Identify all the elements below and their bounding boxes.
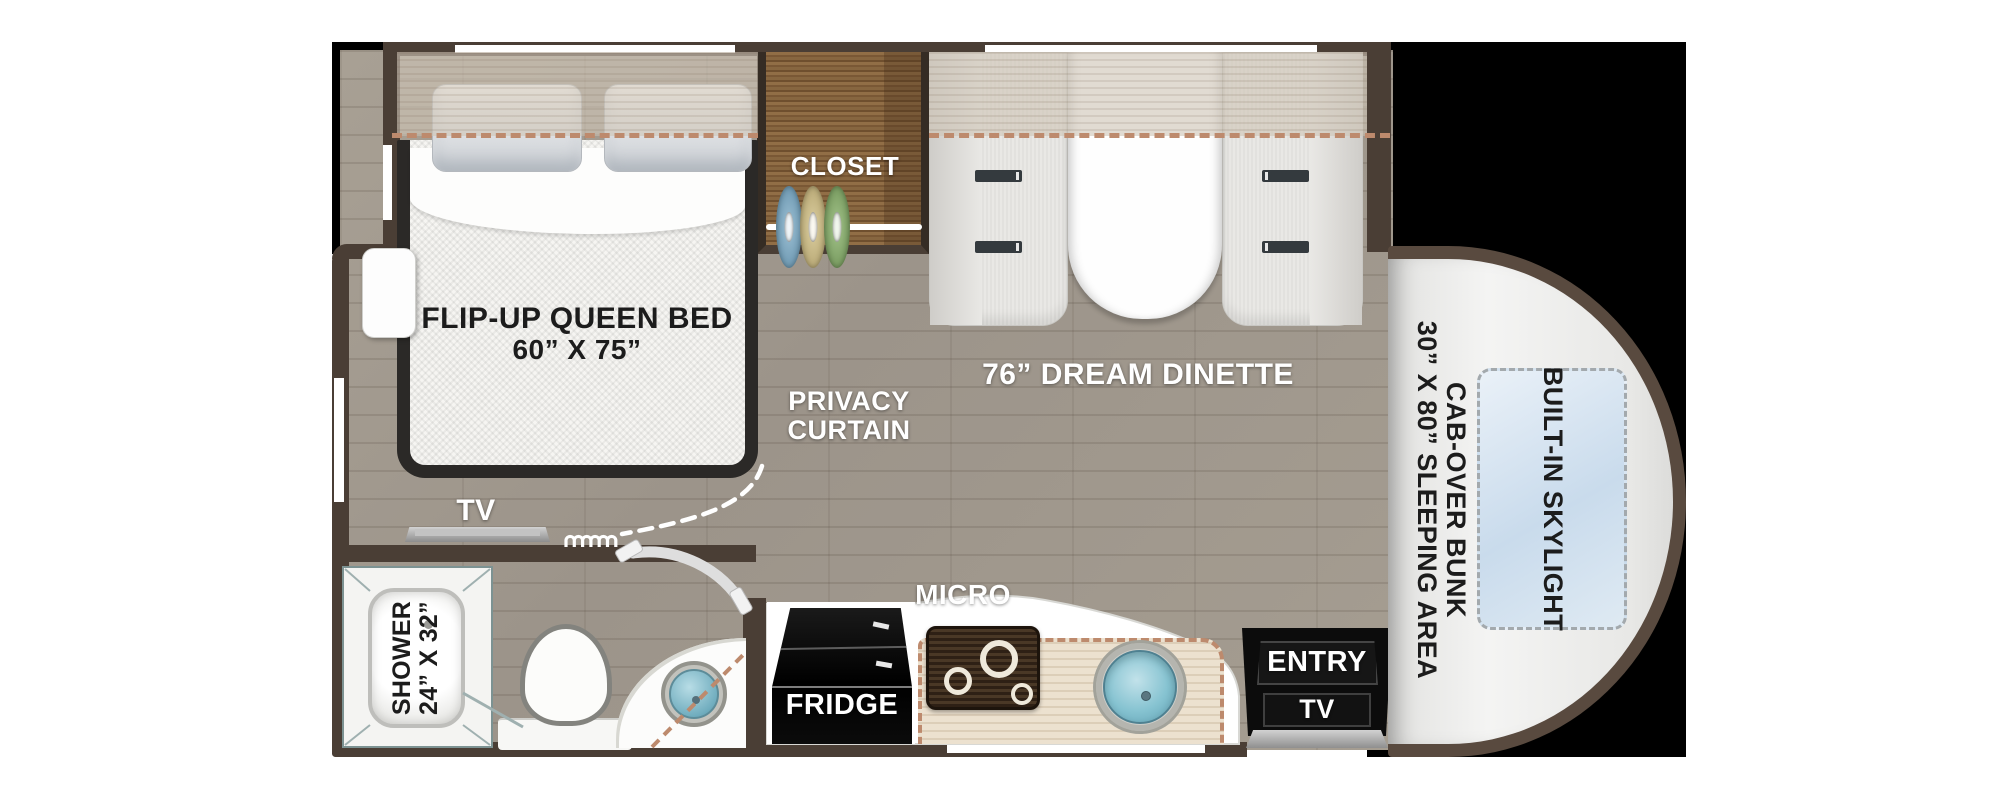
fridge-handle-icon [875,661,892,669]
wall-bathroom-door-jamb [743,598,766,745]
window-bottom [947,745,1205,753]
seatbelt-icon [1262,241,1309,253]
kitchen-sink-drain [1141,691,1151,701]
wall-bathroom [332,545,756,562]
fridge-handle-icon [872,621,889,629]
bathroom-sink [669,669,719,719]
window-left [334,378,344,502]
shower-pan [368,588,465,728]
entry-panel [1257,641,1378,685]
bedroom-tv-screen [415,529,540,536]
seatbelt-icon [975,170,1022,182]
kitchen-sink [1103,650,1177,724]
bathroom-sink-drain [692,696,700,704]
rv-floorplan-page: { "labels": { "closet": "CLOSET", "bed":… [0,0,2000,800]
skylight [1477,368,1627,630]
burner-icon [944,667,972,695]
closet-shelf [884,52,921,245]
burner-icon [980,640,1018,678]
hanger-icon [824,186,850,268]
seatbelt-icon [975,241,1022,253]
hanger-icon [776,186,802,268]
slideout-dash-line [392,133,758,138]
seatbelt-icon [1262,170,1309,182]
fridge-seam [778,646,907,650]
shower-drain [424,620,433,629]
fridge-seam [772,686,912,688]
overhead-cabinet-dinette [929,52,1367,136]
entry-base [1246,730,1388,748]
nightstand [362,248,416,338]
window-bedroom-left [383,145,392,220]
overhead-cabinet-bed [397,52,758,136]
wall-dinette-right [1367,42,1391,252]
slideout-dash-line [929,133,1390,138]
burner-icon [1011,683,1033,705]
hanger-icon [800,186,826,268]
entry-tv-panel [1263,693,1371,727]
fridge [772,608,912,744]
